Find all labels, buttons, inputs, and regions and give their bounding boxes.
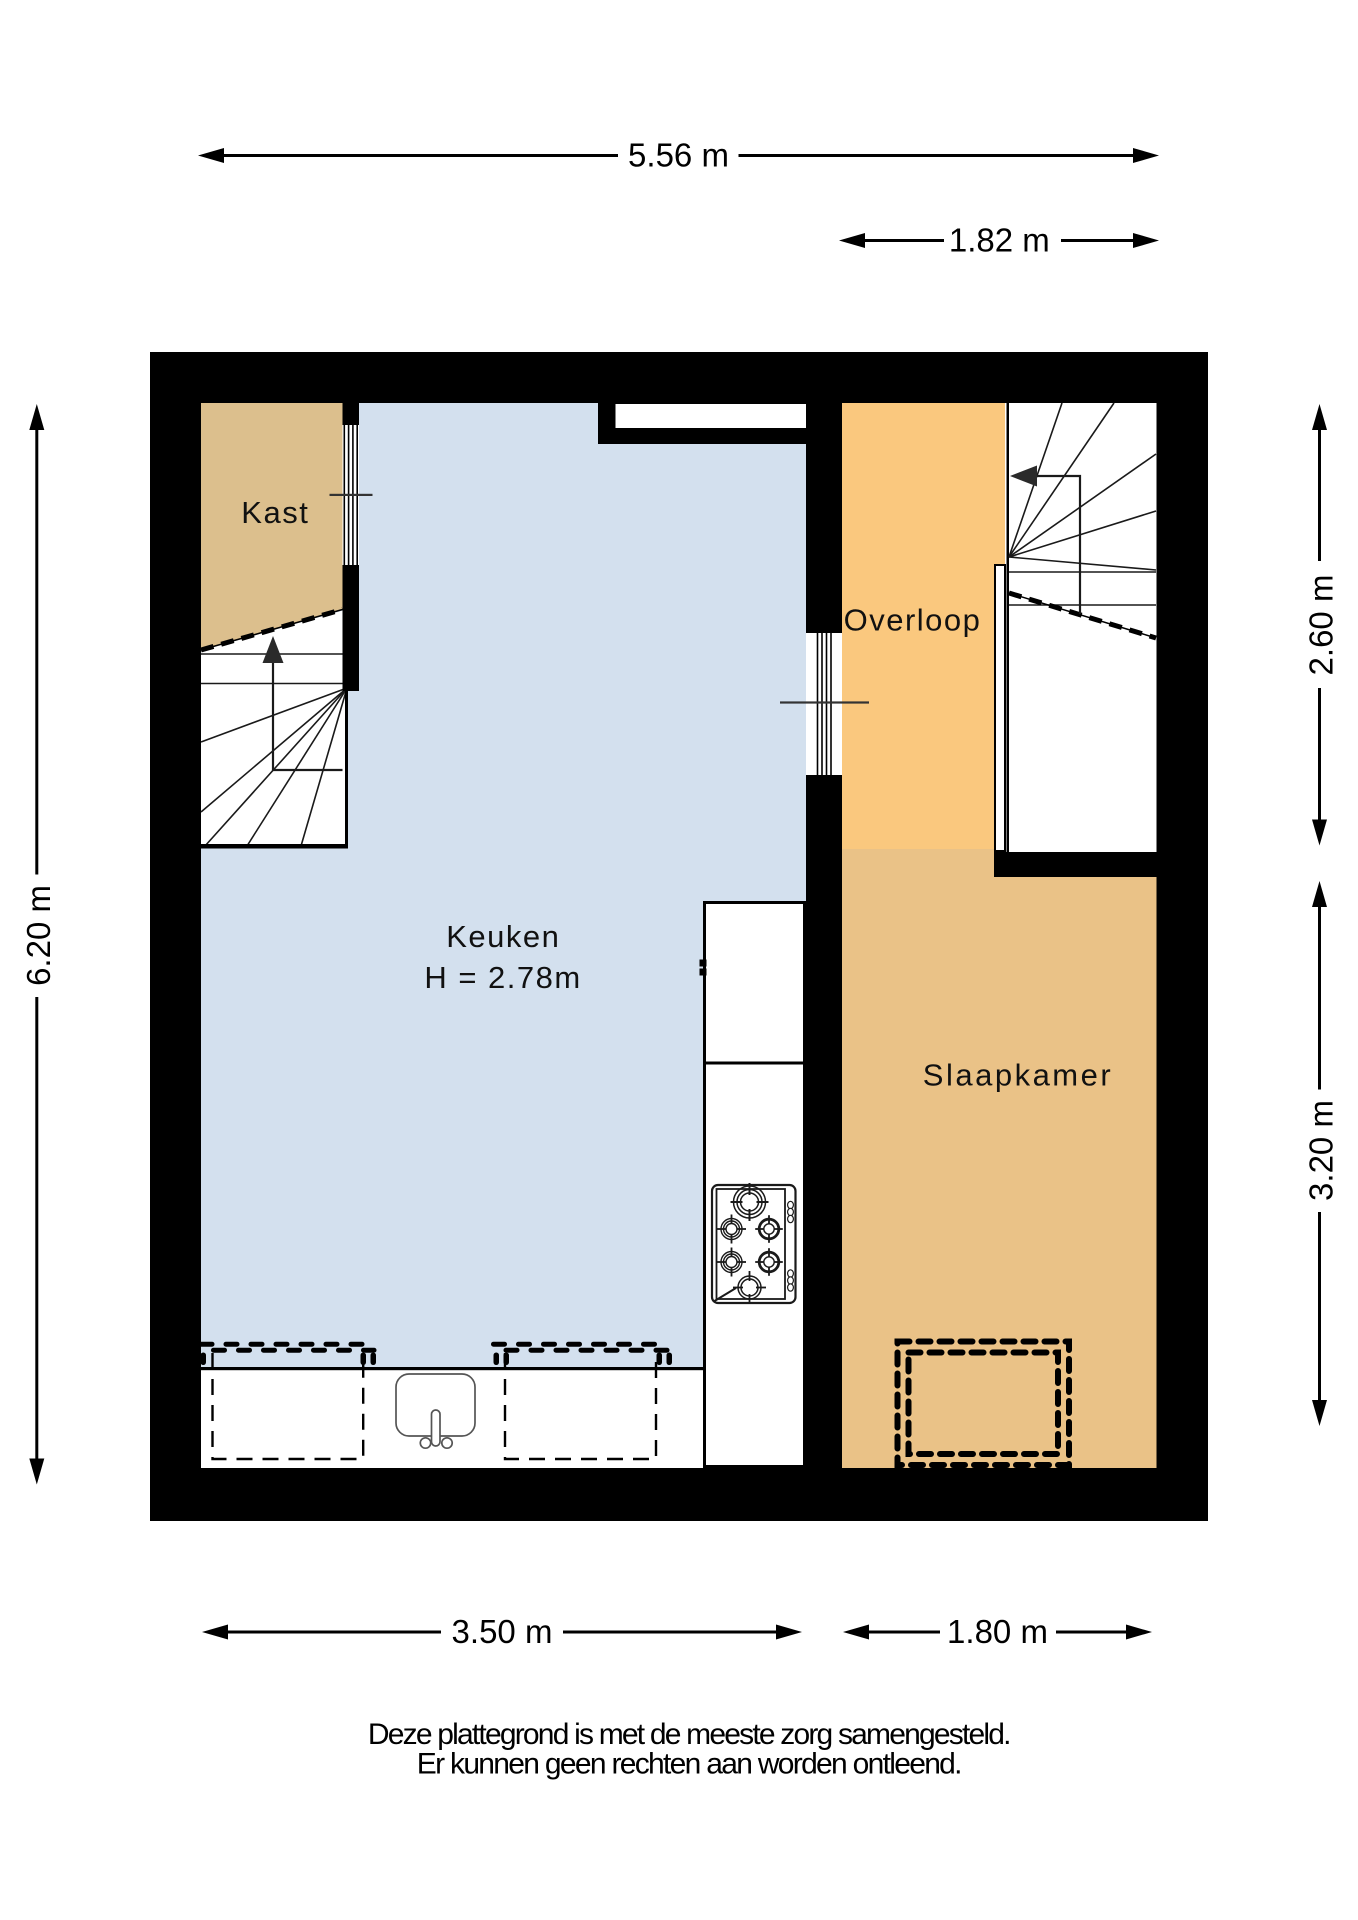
svg-text:H = 2.78m: H = 2.78m (424, 960, 581, 995)
svg-text:2.60 m: 2.60 m (1303, 575, 1340, 676)
svg-text:Keuken: Keuken (446, 919, 560, 954)
svg-text:3.50 m: 3.50 m (452, 1613, 553, 1650)
svg-text:6.20 m: 6.20 m (20, 885, 57, 986)
svg-text:Overloop: Overloop (844, 603, 982, 638)
svg-text:3.20 m: 3.20 m (1303, 1100, 1340, 1201)
svg-text:5.56 m: 5.56 m (628, 136, 729, 173)
svg-text:Kast: Kast (241, 495, 309, 530)
svg-text:Deze plattegrond is met de mee: Deze plattegrond is met de meeste zorg s… (368, 1718, 1010, 1751)
svg-text:1.80 m: 1.80 m (947, 1613, 1048, 1650)
svg-text:1.82 m: 1.82 m (949, 221, 1050, 258)
svg-text:Slaapkamer: Slaapkamer (923, 1058, 1113, 1093)
svg-text:Er kunnen geen rechten aan wor: Er kunnen geen rechten aan worden ontlee… (417, 1748, 961, 1781)
